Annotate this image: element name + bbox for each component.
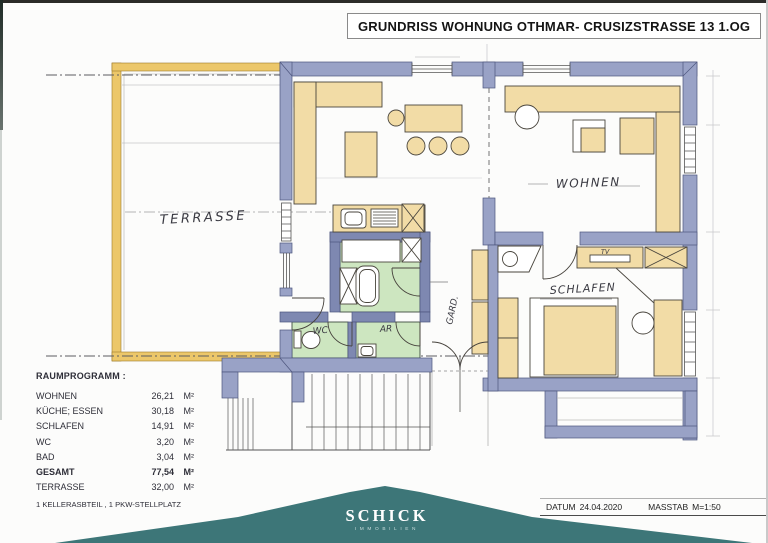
room-area-label: GESAMT [36, 467, 142, 477]
kitchen-cabinet [345, 132, 377, 177]
room-area-unit: M² [174, 421, 194, 431]
side-stairs [228, 398, 253, 450]
raumprogramm-row: SCHLAFEN 14,91 M² [36, 419, 194, 434]
room-area-value: 77,54 [142, 467, 174, 477]
hall-wardrobe [472, 302, 488, 354]
room-label-wc: WC [312, 326, 329, 337]
dining-chair [429, 137, 447, 155]
window-left-1 [282, 203, 292, 241]
bed [544, 306, 616, 375]
kitchen-counter-left [294, 82, 316, 204]
room-area-label: BAD [36, 452, 142, 462]
room-area-unit: M² [174, 391, 194, 401]
window-top-2 [523, 63, 570, 75]
brand-logo-subtext: IMMOBILIEN [355, 526, 419, 532]
raumprogramm-row: BAD 3,04 M² [36, 449, 194, 464]
raumprogramm-total-row: GESAMT 77,54 M² [36, 464, 194, 479]
raumprogramm-row: WC 3,20 M² [36, 434, 194, 449]
corner-diagonal [616, 268, 654, 303]
desk-chair [632, 312, 654, 334]
room-area-value: 26,21 [142, 391, 174, 401]
toilet-tank [294, 331, 301, 348]
room-label-terrasse: TERRASSE [159, 208, 247, 228]
bedroom-cabinet [498, 298, 518, 338]
room-label-wohnen: WOHNEN [556, 175, 621, 191]
datum-label: DATUM [546, 502, 576, 512]
room-area-unit: M² [174, 437, 194, 447]
brand-logo-text: SCHICK [345, 506, 428, 525]
title-block-info: DATUM 24.04.2020 MASSTAB M=1:50 [540, 498, 766, 516]
window-top-1 [412, 63, 452, 75]
window-left-2 [284, 253, 290, 288]
room-area-value: 30,18 [142, 406, 174, 416]
armchair [515, 105, 539, 129]
room-area-label: WOHNEN [36, 391, 142, 401]
room-area-value: 3,04 [142, 452, 174, 462]
hall-wardrobe [472, 250, 488, 300]
datum-value: 24.04.2020 [580, 502, 623, 512]
dining-table [405, 105, 462, 132]
lower-annex [557, 398, 683, 420]
bedroom-door [543, 245, 577, 279]
washbasin [503, 252, 518, 267]
desk [654, 300, 682, 376]
room-label-gard: GARD. [445, 295, 461, 326]
dining-chair [407, 137, 425, 155]
room-area-unit: M² [174, 467, 194, 477]
stairs [226, 372, 488, 450]
living-furniture [489, 86, 680, 232]
kitchen-furniture [294, 82, 469, 232]
bedroom-furniture [472, 246, 687, 378]
sofa-right [656, 112, 680, 232]
room-area-value: 14,91 [142, 421, 174, 431]
bedroom-cabinet [498, 338, 518, 378]
room-area-label: WC [36, 437, 142, 447]
vanity [342, 240, 400, 262]
room-label-ar: AR [379, 324, 393, 335]
raumprogramm-row: KÜCHE; ESSEN 30,18 M² [36, 403, 194, 418]
masstab-label: MASSTAB [648, 502, 688, 512]
raumprogramm-heading: RAUMPROGRAMM : [36, 371, 194, 381]
masstab-value: M=1:50 [692, 502, 721, 512]
room-area-value: 3,20 [142, 437, 174, 447]
side-table [620, 118, 654, 154]
dining-chair [451, 137, 469, 155]
tv-label: TV [601, 248, 610, 256]
raumprogramm-row: WOHNEN 26,21 M² [36, 388, 194, 403]
scanned-floorplan-page: GRUNDRISS WOHNUNG OTHMAR- CRUSIZSTRASSE … [0, 0, 768, 543]
dining-chair [388, 110, 404, 126]
room-area-unit: M² [174, 452, 194, 462]
room-area-label: KÜCHE; ESSEN [36, 406, 142, 416]
room-label-schlafen: SCHLAFEN [549, 281, 616, 297]
room-area-unit: M² [174, 406, 194, 416]
window-right-1 [685, 127, 696, 173]
room-area-label: SCHLAFEN [36, 421, 142, 431]
